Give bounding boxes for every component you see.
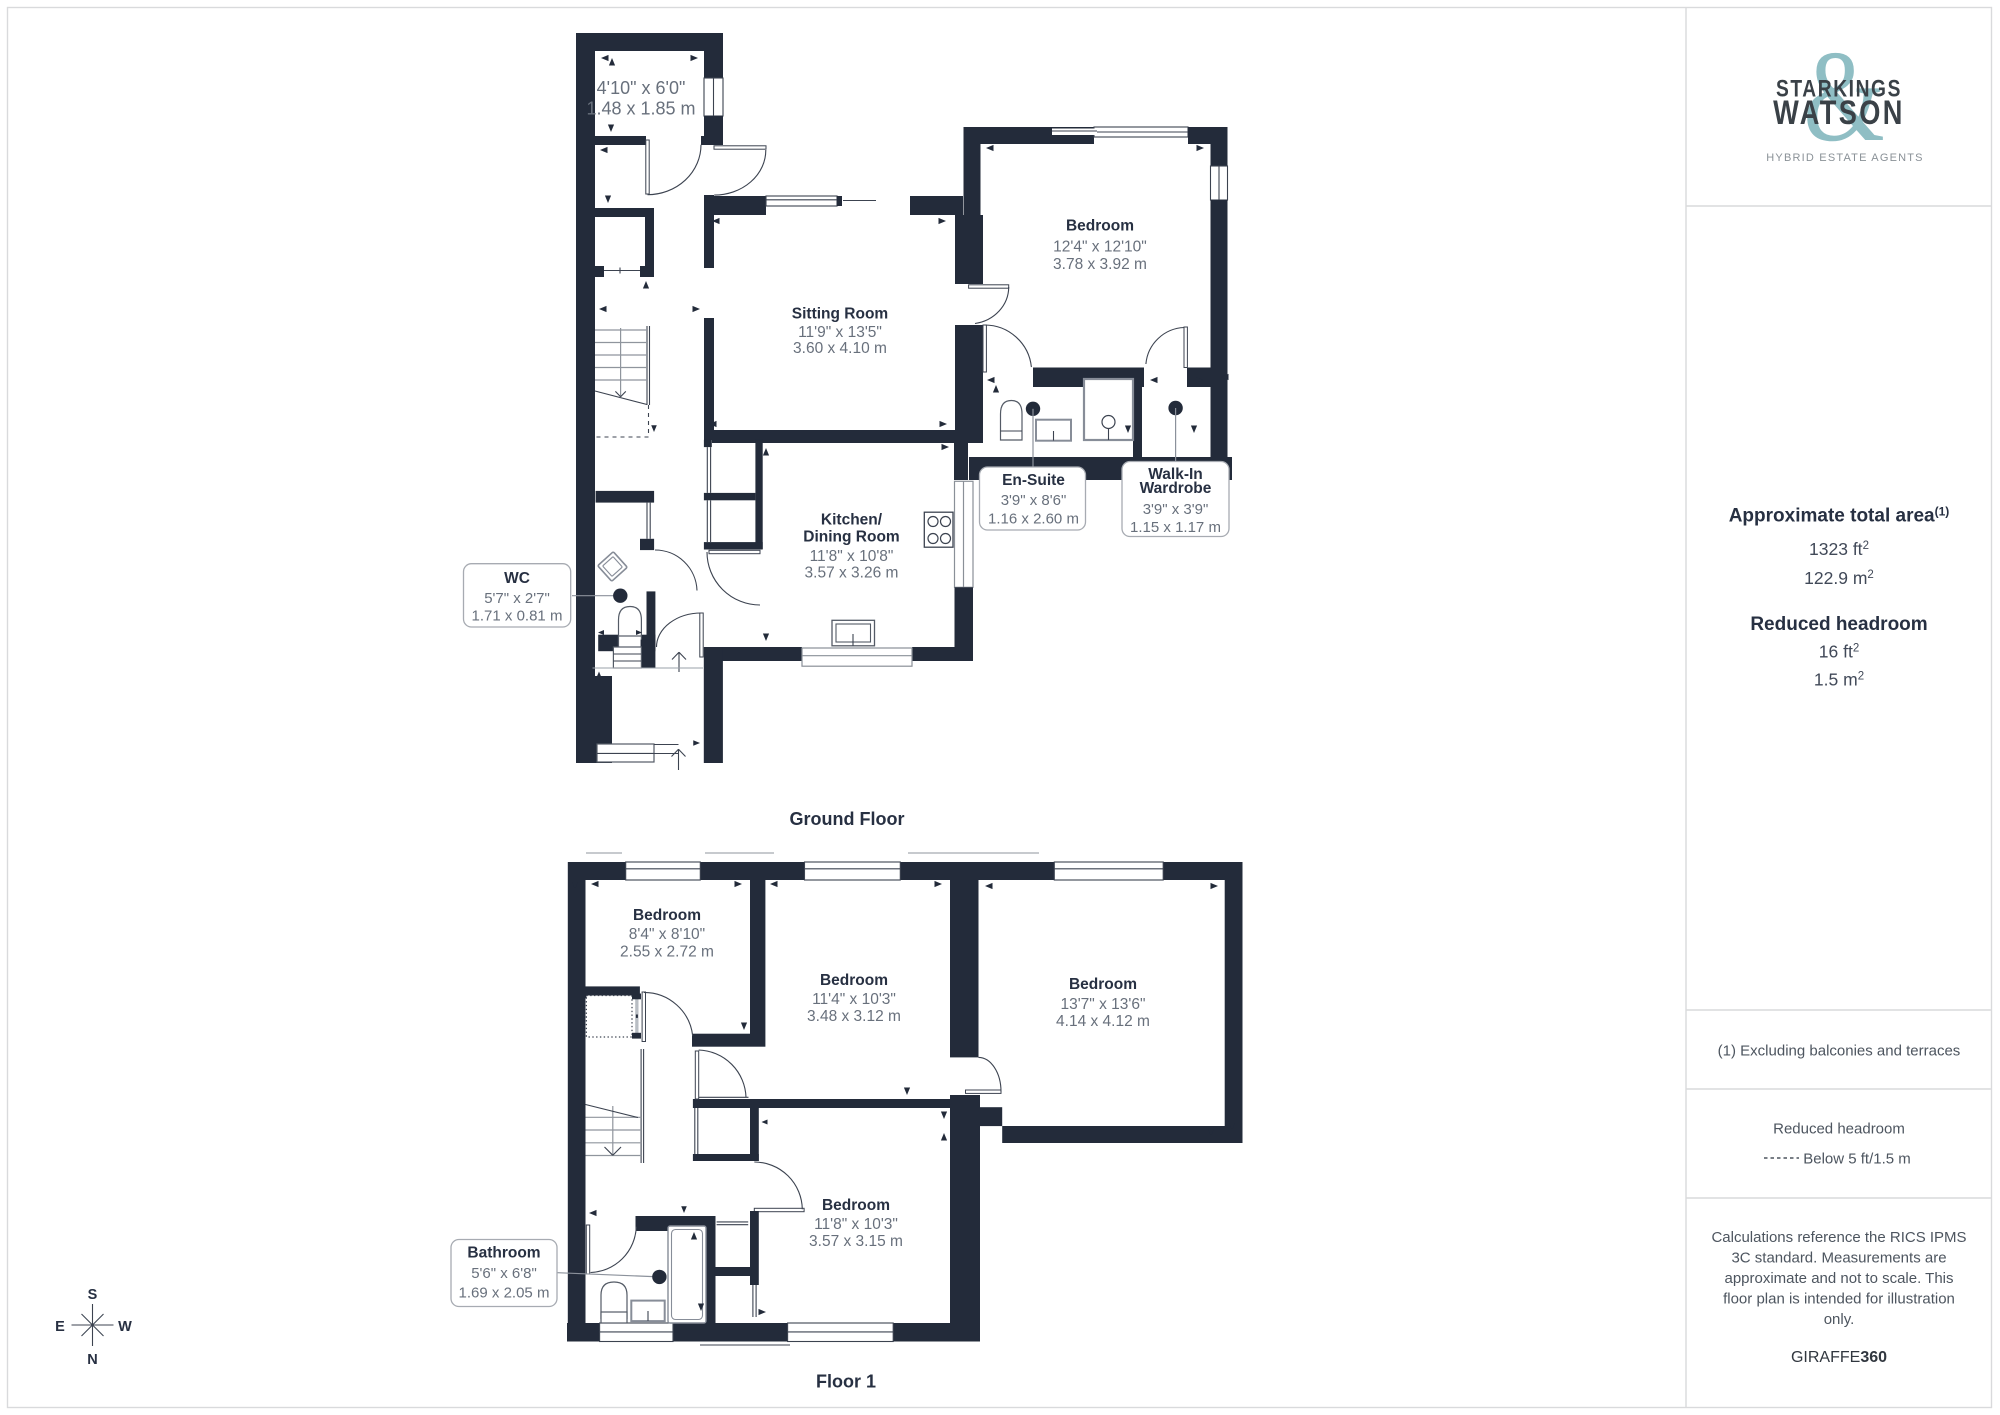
svg-text:Bathroom: Bathroom bbox=[467, 1245, 540, 1262]
svg-text:Wardrobe: Wardrobe bbox=[1140, 480, 1212, 497]
svg-text:HYBRID ESTATE AGENTS: HYBRID ESTATE AGENTS bbox=[1766, 152, 1923, 164]
svg-text:En-Suite: En-Suite bbox=[1002, 472, 1065, 489]
svg-text:Floor 1: Floor 1 bbox=[816, 1372, 876, 1392]
svg-text:11'8" x 10'8": 11'8" x 10'8" bbox=[810, 548, 894, 565]
svg-text:3'9" x 8'6": 3'9" x 8'6" bbox=[1001, 492, 1067, 509]
svg-text:Bedroom: Bedroom bbox=[1069, 976, 1137, 993]
svg-text:Bedroom: Bedroom bbox=[820, 972, 888, 989]
svg-text:Reduced headroom: Reduced headroom bbox=[1750, 614, 1927, 635]
svg-text:8'4" x 8'10": 8'4" x 8'10" bbox=[629, 926, 705, 943]
svg-text:Calculations reference the RIC: Calculations reference the RICS IPMS bbox=[1711, 1229, 1966, 1246]
svg-text:Approximate total area(1): Approximate total area(1) bbox=[1729, 505, 1950, 527]
svg-text:2.55 x 2.72 m: 2.55 x 2.72 m bbox=[620, 944, 714, 961]
svg-text:1.5 m2: 1.5 m2 bbox=[1814, 670, 1864, 690]
svg-text:Bedroom: Bedroom bbox=[1066, 218, 1134, 235]
svg-text:1.15 x 1.17 m: 1.15 x 1.17 m bbox=[1130, 519, 1221, 536]
svg-text:3.60 x 4.10 m: 3.60 x 4.10 m bbox=[793, 340, 887, 357]
svg-text:3.78 x 3.92 m: 3.78 x 3.92 m bbox=[1053, 256, 1147, 273]
svg-text:(1) Excluding balconies and te: (1) Excluding balconies and terraces bbox=[1718, 1043, 1961, 1060]
svg-text:122.9 m2: 122.9 m2 bbox=[1804, 568, 1874, 588]
svg-text:1.16 x 2.60 m: 1.16 x 2.60 m bbox=[988, 511, 1079, 528]
svg-text:13'7" x 13'6": 13'7" x 13'6" bbox=[1060, 996, 1145, 1013]
svg-text:4.14 x 4.12 m: 4.14 x 4.12 m bbox=[1056, 1013, 1150, 1030]
svg-text:1.48 x 1.85 m: 1.48 x 1.85 m bbox=[586, 99, 695, 119]
svg-text:E: E bbox=[55, 1319, 65, 1335]
svg-text:3.48 x 3.12 m: 3.48 x 3.12 m bbox=[807, 1008, 901, 1025]
svg-text:4'10" x 6'0": 4'10" x 6'0" bbox=[597, 78, 686, 98]
svg-text:Bedroom: Bedroom bbox=[822, 1197, 890, 1214]
svg-text:Dining Room: Dining Room bbox=[803, 529, 899, 546]
svg-text:11'4" x 10'3": 11'4" x 10'3" bbox=[812, 991, 896, 1008]
svg-text:GIRAFFE360: GIRAFFE360 bbox=[1791, 1349, 1887, 1366]
svg-text:11'8" x 10'3": 11'8" x 10'3" bbox=[814, 1216, 898, 1233]
svg-text:only.: only. bbox=[1824, 1311, 1855, 1328]
svg-text:11'9" x 13'5": 11'9" x 13'5" bbox=[798, 324, 882, 341]
svg-text:3C standard. Measurements are: 3C standard. Measurements are bbox=[1731, 1250, 1946, 1267]
svg-text:WATSON: WATSON bbox=[1773, 93, 1905, 132]
svg-text:approximate and not to scale.: approximate and not to scale. This bbox=[1724, 1270, 1953, 1287]
svg-text:12'4" x 12'10": 12'4" x 12'10" bbox=[1053, 239, 1147, 256]
svg-text:Reduced headroom: Reduced headroom bbox=[1773, 1121, 1905, 1138]
svg-text:3'9" x 3'9": 3'9" x 3'9" bbox=[1143, 501, 1209, 518]
svg-text:5'6" x 6'8": 5'6" x 6'8" bbox=[471, 1265, 537, 1282]
svg-text:Kitchen/: Kitchen/ bbox=[821, 512, 883, 529]
svg-text:floor plan is intended for ill: floor plan is intended for illustration bbox=[1723, 1291, 1955, 1308]
svg-text:W: W bbox=[118, 1319, 132, 1335]
svg-text:WC: WC bbox=[504, 570, 530, 587]
svg-text:5'7" x 2'7": 5'7" x 2'7" bbox=[484, 590, 550, 607]
svg-text:1323 ft2: 1323 ft2 bbox=[1809, 539, 1869, 559]
svg-text:Below 5 ft/1.5 m: Below 5 ft/1.5 m bbox=[1803, 1151, 1911, 1168]
svg-text:Bedroom: Bedroom bbox=[633, 907, 701, 924]
svg-text:S: S bbox=[88, 1287, 98, 1303]
svg-text:3.57 x 3.26 m: 3.57 x 3.26 m bbox=[805, 565, 899, 582]
svg-text:Sitting Room: Sitting Room bbox=[792, 306, 888, 323]
svg-text:N: N bbox=[87, 1352, 97, 1368]
svg-text:1.71 x 0.81 m: 1.71 x 0.81 m bbox=[472, 608, 563, 625]
svg-text:1.69 x 2.05 m: 1.69 x 2.05 m bbox=[459, 1284, 550, 1301]
svg-text:Ground Floor: Ground Floor bbox=[790, 809, 905, 829]
svg-text:3.57 x 3.15 m: 3.57 x 3.15 m bbox=[809, 1233, 903, 1250]
